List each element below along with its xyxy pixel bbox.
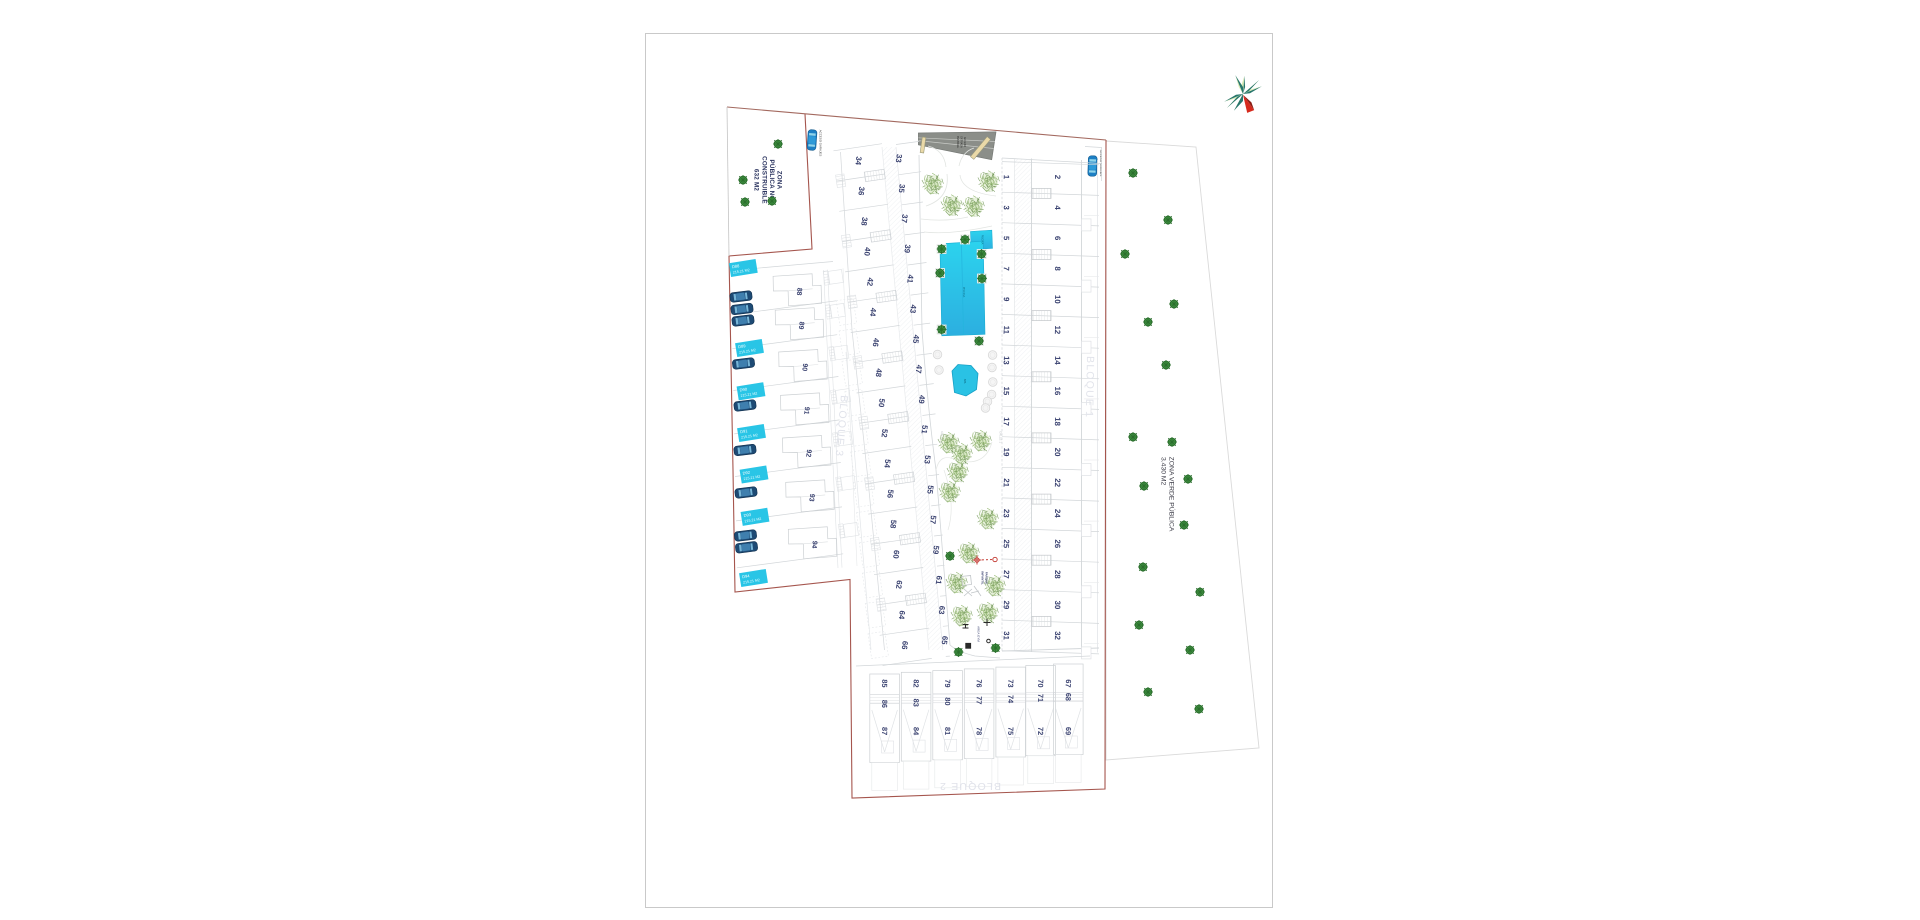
svg-text:76: 76 <box>974 679 983 688</box>
svg-text:72: 72 <box>1036 727 1045 736</box>
svg-text:92: 92 <box>804 449 812 458</box>
svg-text:30: 30 <box>1053 600 1062 610</box>
svg-text:CALLE 1: CALLE 1 <box>998 431 1002 443</box>
svg-text:BLOQUE 2: BLOQUE 2 <box>939 780 1001 792</box>
svg-text:91: 91 <box>802 406 810 415</box>
svg-text:3.430 M2: 3.430 M2 <box>1160 457 1167 486</box>
svg-text:90: 90 <box>800 363 808 372</box>
svg-text:69: 69 <box>1064 727 1073 736</box>
svg-text:57: 57 <box>928 515 938 525</box>
svg-text:80: 80 <box>943 697 952 706</box>
svg-text:BLOQUE 1: BLOQUE 1 <box>1083 356 1096 418</box>
svg-text:632 M2: 632 M2 <box>753 169 760 192</box>
svg-text:93: 93 <box>807 493 815 502</box>
svg-text:77: 77 <box>974 696 983 705</box>
svg-text:21: 21 <box>1002 478 1011 488</box>
svg-text:84: 84 <box>911 727 920 736</box>
svg-text:67: 67 <box>1064 679 1073 688</box>
svg-text:83: 83 <box>911 698 920 707</box>
svg-text:82: 82 <box>911 679 920 688</box>
svg-text:PISCINA: PISCINA <box>962 287 966 298</box>
svg-text:75: 75 <box>1006 727 1015 736</box>
svg-text:37: 37 <box>899 214 909 224</box>
svg-text:AREA GYM: AREA GYM <box>977 626 981 642</box>
svg-text:31: 31 <box>1002 631 1011 641</box>
svg-text:29: 29 <box>1002 600 1011 610</box>
svg-text:ZONA VERDE PÚBLICA: ZONA VERDE PÚBLICA <box>1168 457 1177 532</box>
svg-text:7: 7 <box>1002 266 1011 271</box>
svg-text:27: 27 <box>1002 570 1011 579</box>
svg-text:79: 79 <box>943 679 952 688</box>
svg-text:16: 16 <box>1053 386 1062 396</box>
svg-text:PÚBLICA NO: PÚBLICA NO <box>768 160 777 201</box>
svg-text:ZONA: ZONA <box>776 171 783 190</box>
svg-text:13: 13 <box>1002 356 1011 366</box>
svg-text:71: 71 <box>1036 694 1045 703</box>
svg-text:73: 73 <box>1006 679 1015 688</box>
svg-text:24: 24 <box>1053 509 1062 519</box>
svg-text:23: 23 <box>1002 509 1011 519</box>
svg-text:74: 74 <box>1006 695 1015 704</box>
svg-text:32: 32 <box>1053 631 1062 641</box>
svg-text:25: 25 <box>1002 539 1011 549</box>
svg-text:94: 94 <box>810 540 818 549</box>
svg-text:70: 70 <box>1036 679 1045 688</box>
svg-text:88: 88 <box>795 287 803 296</box>
svg-text:17: 17 <box>1002 417 1011 426</box>
svg-text:47: 47 <box>914 364 924 374</box>
svg-text:15: 15 <box>1002 386 1011 396</box>
svg-text:81: 81 <box>943 727 952 736</box>
svg-text:68: 68 <box>1064 693 1073 702</box>
svg-text:85: 85 <box>880 679 889 688</box>
svg-text:SPA: SPA <box>963 379 966 384</box>
svg-text:20: 20 <box>1053 448 1062 458</box>
svg-text:26: 26 <box>1053 539 1062 549</box>
svg-text:86: 86 <box>880 700 889 709</box>
svg-text:PEATONAL: PEATONAL <box>956 136 959 149</box>
svg-text:CONSTRUIBLE: CONSTRUIBLE <box>760 156 767 204</box>
svg-text:22: 22 <box>1053 478 1062 488</box>
svg-text:11: 11 <box>1002 326 1011 335</box>
svg-text:10: 10 <box>1053 295 1062 305</box>
svg-text:14: 14 <box>1053 356 1062 366</box>
svg-text:28: 28 <box>1053 570 1062 580</box>
svg-text:78: 78 <box>974 727 983 736</box>
svg-text:19: 19 <box>1002 448 1011 458</box>
svg-text:ACCESO GARAJES: ACCESO GARAJES <box>819 130 823 157</box>
svg-text:18: 18 <box>1053 417 1062 427</box>
svg-text:89: 89 <box>797 321 805 330</box>
svg-text:12: 12 <box>1053 325 1062 335</box>
svg-text:INFANTIL: INFANTIL <box>981 571 985 585</box>
svg-text:PISCINA: PISCINA <box>981 235 984 245</box>
svg-text:87: 87 <box>880 727 889 736</box>
